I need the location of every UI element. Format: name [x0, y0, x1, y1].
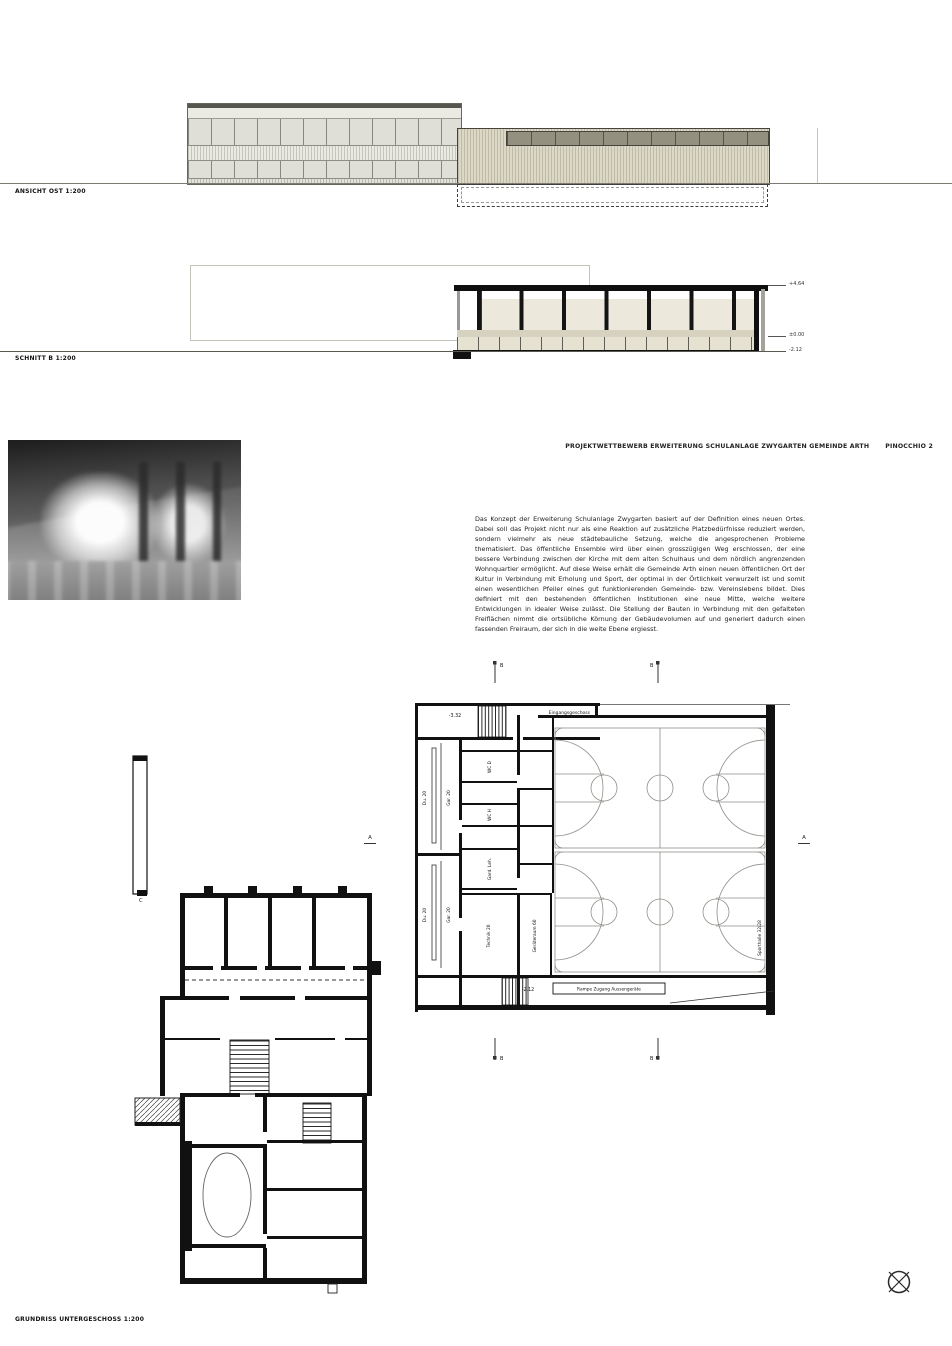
svg-text:B: B — [650, 663, 654, 669]
ramp-line — [670, 991, 774, 1003]
room-label-gar1: Gar. 20 — [446, 790, 452, 806]
svg-text:B: B — [500, 663, 504, 669]
elevation-ribbed-band — [188, 146, 461, 161]
section-marker-b-bottom-left: B — [493, 1038, 504, 1062]
retaining-wall-wing — [133, 756, 147, 896]
elevation-school-building — [187, 103, 462, 185]
plan-marker-c: C — [139, 898, 143, 904]
entry-level-label: -3.32 — [449, 713, 461, 719]
section-marker-a-right: A — [796, 836, 812, 844]
basketball-court-upper — [555, 728, 765, 848]
basketball-court-lower — [555, 852, 765, 972]
section-level-basement: -2.12 — [789, 347, 802, 353]
section-marker-b-top-left: B — [493, 661, 504, 683]
elevation-window-band — [188, 161, 461, 179]
elevation-label: ANSICHT OST 1:200 — [15, 188, 86, 195]
elevation-gym-building — [457, 128, 770, 185]
section-marker-b-bottom-right: B — [650, 1038, 660, 1062]
plan-south-stub — [328, 1284, 337, 1293]
entrance-canopy — [135, 1098, 180, 1126]
section-level-roof: +4.64 — [789, 281, 804, 287]
old-building-walls — [160, 886, 381, 1284]
section-gym-cut — [457, 285, 765, 352]
entry-stairs — [478, 706, 506, 737]
project-motto: PINOCCHIO 2 — [885, 443, 933, 450]
ramp-label: Rampe Zugang Aussengeräte — [577, 987, 641, 993]
room-label-geraeteraum: Geräteraum 60 — [532, 919, 538, 952]
title-block: PROJEKTWETTBEWERB ERWEITERUNG SCHULANLAG… — [565, 443, 933, 450]
section-basement — [457, 337, 755, 352]
section-roof-slab — [454, 285, 768, 291]
presentation-sheet: ANSICHT OST 1:200 +4.64 ±0.00 -2.12 SCHN… — [0, 0, 952, 1346]
svg-text:B: B — [650, 1056, 654, 1062]
room-label-technik: Technik 20 — [486, 924, 492, 948]
elevation-window-band — [188, 119, 461, 146]
room-label-gar2: Gar. 20 — [446, 907, 452, 923]
interior-render-image — [8, 440, 241, 600]
section-level-ground: ±0.00 — [789, 332, 804, 338]
old-building-stairs — [230, 1040, 331, 1143]
section-ground-line — [0, 351, 782, 352]
hall-level-label: -2.12 — [522, 987, 534, 993]
section-floor-band — [457, 330, 755, 337]
gym-basement-plan: B B B B — [410, 653, 795, 1068]
project-title: PROJEKTWETTBEWERB ERWEITERUNG SCHULANLAG… — [565, 443, 869, 450]
oval-room-element — [203, 1153, 251, 1237]
gym-walls — [415, 703, 775, 1015]
elevation-underground-dashed-outline — [457, 184, 768, 207]
north-symbol-icon — [885, 1268, 913, 1296]
elevation-ground-line — [0, 183, 952, 184]
room-label-gard-leh: Gard. Leh. — [487, 858, 493, 880]
room-label-du2: Du. 20 — [422, 908, 428, 922]
project-description: Das Konzept der Erweiterung Schulanlage … — [475, 514, 805, 634]
room-label-wc-h: WC H — [487, 809, 493, 821]
section-label: SCHNITT B 1:200 — [15, 355, 76, 362]
room-label-wc-d: WC D — [487, 760, 493, 773]
room-label-du1: Du. 20 — [422, 791, 428, 805]
entry-label: Eingangsgeschoss — [549, 710, 591, 716]
svg-text:B: B — [500, 1056, 504, 1062]
plan-label: GRUNDRISS UNTERGESCHOSS 1:200 — [15, 1316, 144, 1323]
elevation-context-line — [817, 128, 818, 183]
section-marker-b-top-right: B — [650, 661, 660, 683]
elevation-clerestory-band — [506, 131, 769, 146]
existing-building-plan: C — [125, 748, 390, 1298]
room-label-sporthalle: Sporthalle 32/28 — [757, 920, 763, 956]
